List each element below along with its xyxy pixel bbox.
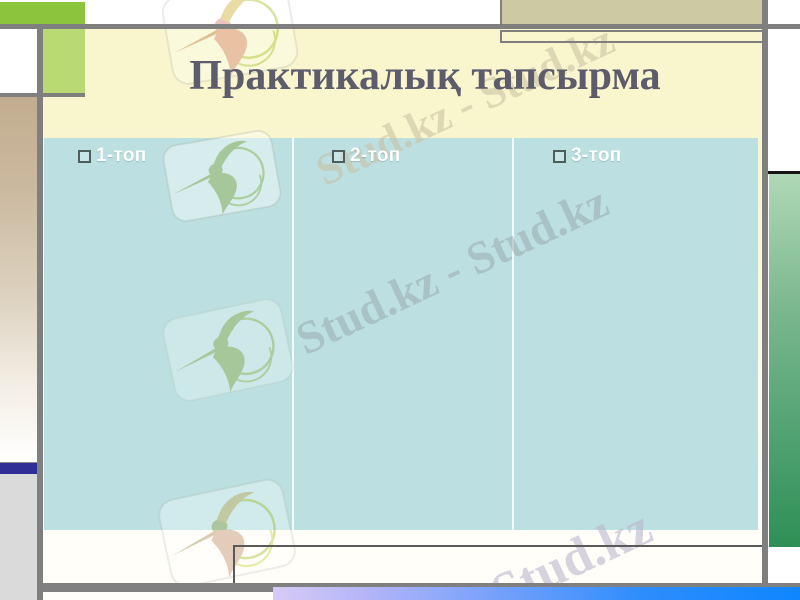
column-label: 1-топ xyxy=(96,145,147,167)
square-bullet-icon xyxy=(553,150,566,163)
right-vertical-rule xyxy=(762,0,768,591)
bottom-right-white-block xyxy=(768,547,800,583)
column-label: 2-топ xyxy=(350,145,401,167)
square-bullet-icon xyxy=(332,150,345,163)
top-right-tan-block xyxy=(500,0,764,24)
column-header-group3: 3-топ xyxy=(553,145,622,167)
top-left-green-block xyxy=(0,2,85,24)
left-lightgreen-block xyxy=(43,29,85,93)
left-lightgray-block xyxy=(0,474,37,600)
left-vertical-rule xyxy=(37,24,43,600)
left-white-block xyxy=(0,29,37,93)
top-horizontal-rule xyxy=(0,24,800,29)
left-tan-gradient-column xyxy=(0,97,37,462)
column-divider-1 xyxy=(292,138,294,530)
right-green-gradient-column xyxy=(769,174,800,547)
bottom-blue-gradient-bar xyxy=(273,587,800,600)
column-divider-2 xyxy=(512,138,514,530)
square-bullet-icon xyxy=(78,150,91,163)
content-panel xyxy=(44,138,758,530)
column-header-group2: 2-топ xyxy=(332,145,401,167)
slide-title: Практикалық тапсырма xyxy=(85,52,765,100)
slide-canvas: .lg-rect{fill:rgba(255,255,255,.55);stro… xyxy=(0,0,800,600)
column-header-group1: 1-топ xyxy=(78,145,147,167)
bottom-left-white-strip xyxy=(43,592,273,600)
column-label: 3-топ xyxy=(571,145,622,167)
top-right-outline-box xyxy=(500,30,764,43)
